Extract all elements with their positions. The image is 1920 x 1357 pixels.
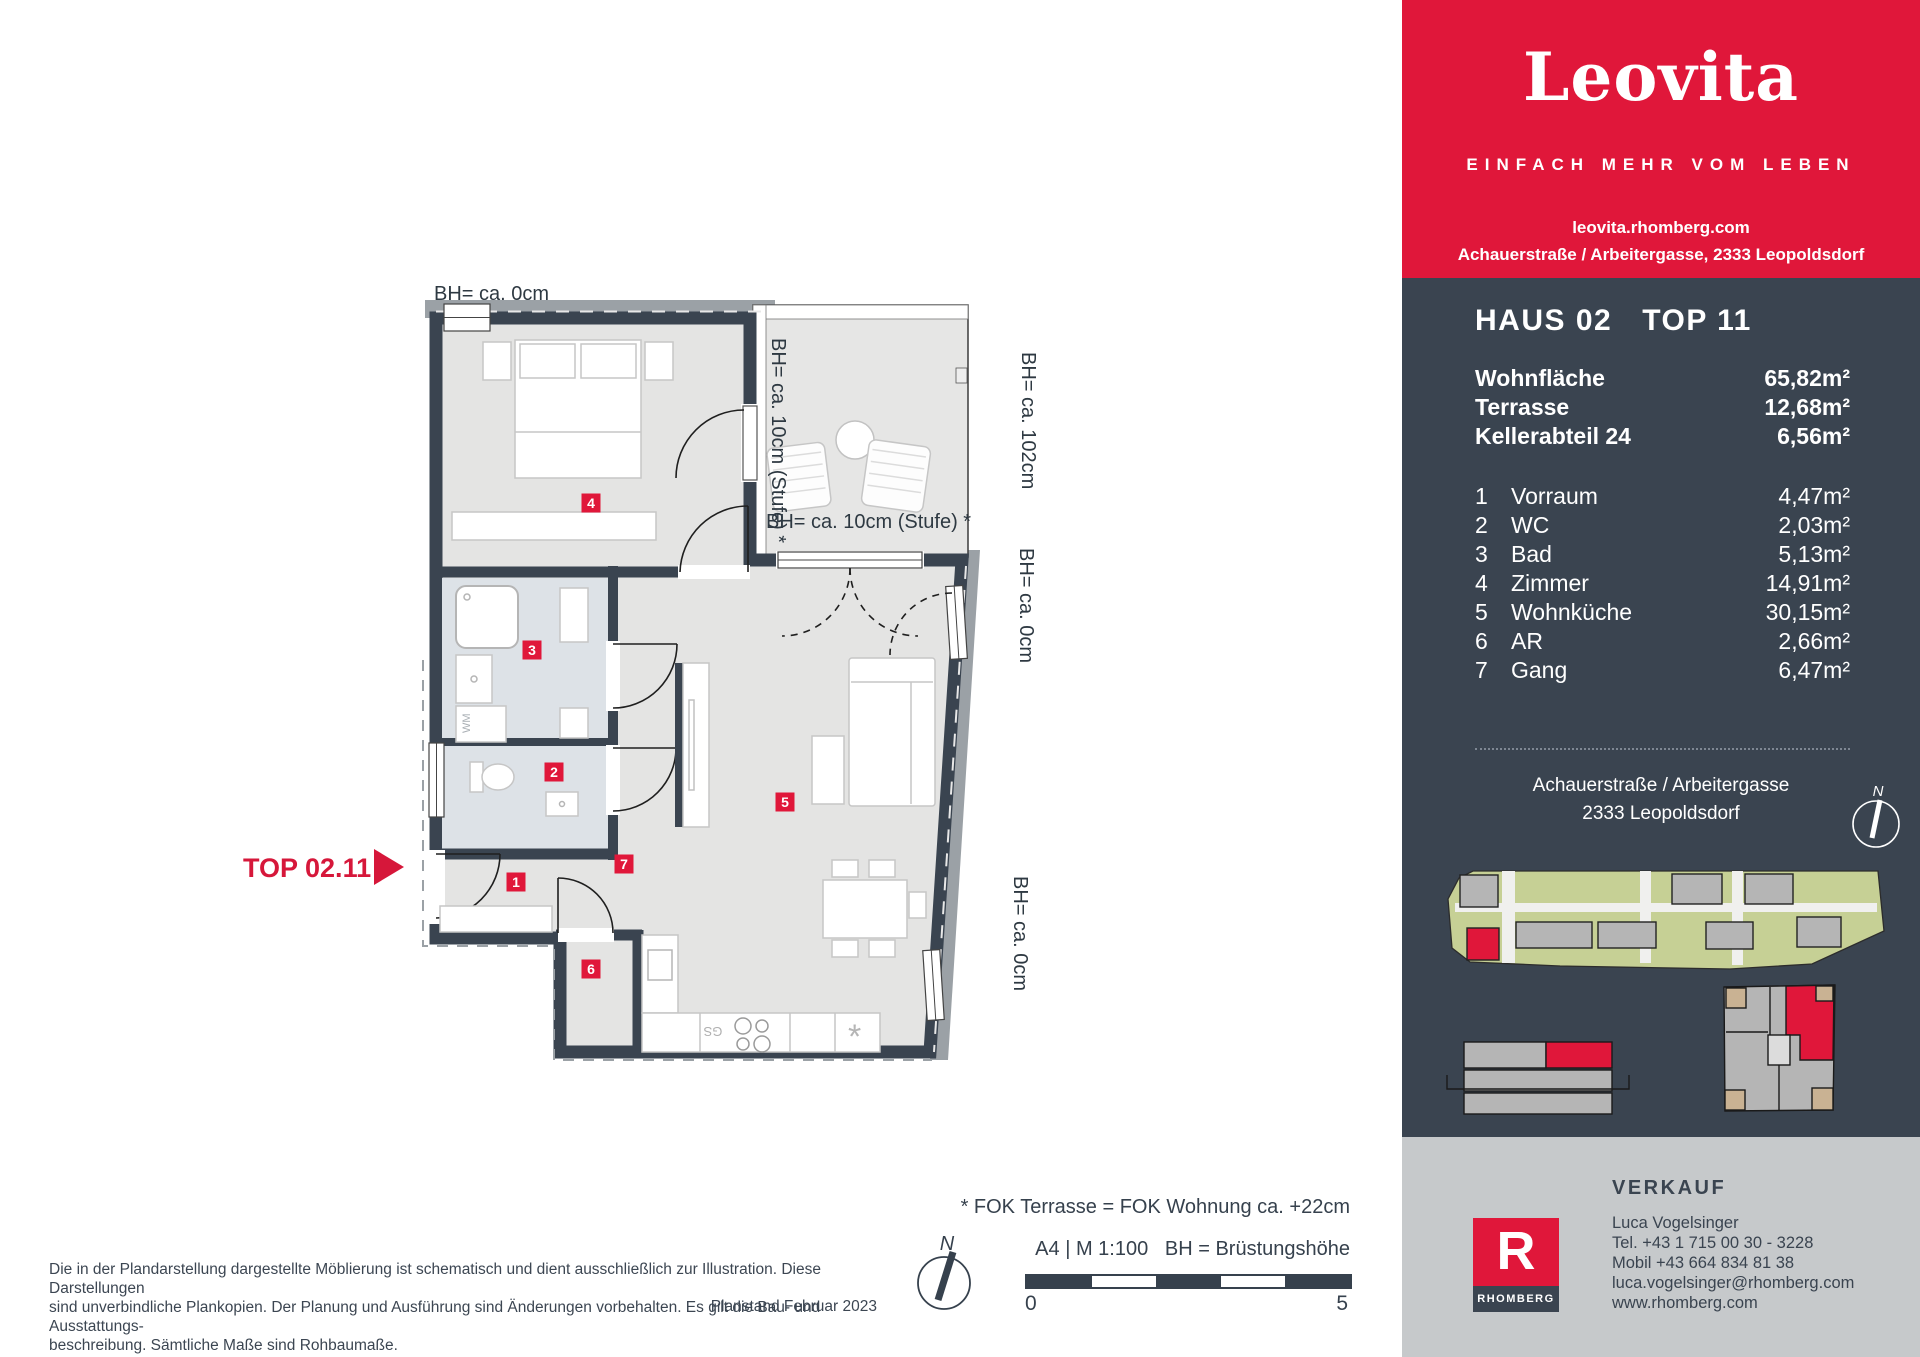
bh-label-top: BH= ca. 0cm xyxy=(434,283,549,305)
rhomberg-logo-text: RHOMBERG xyxy=(1473,1286,1559,1312)
area-row: Kellerabteil 246,56m² xyxy=(1475,422,1850,451)
bed xyxy=(515,340,641,478)
scale-seg xyxy=(1092,1276,1157,1287)
unit-pointer: TOP 02.11 xyxy=(243,849,404,885)
elevation-highlight xyxy=(1546,1042,1612,1068)
compass: N xyxy=(900,1220,990,1330)
room-list: 1Vorraum4,47m² 2WC2,03m² 3Bad5,13m² 4Zim… xyxy=(1475,482,1850,685)
room-badge: 4 xyxy=(582,494,601,513)
vorraum-wardrobe xyxy=(440,906,552,932)
divider xyxy=(1475,748,1850,750)
bath-cabinet-small xyxy=(560,708,588,738)
wc-window xyxy=(429,743,444,817)
unit-pointer-arrow-icon xyxy=(374,849,404,885)
svg-text:1: 1 xyxy=(512,874,520,890)
sidebar-compass-n: N xyxy=(1873,783,1884,800)
fok-note: * FOK Terrasse = FOK Wohnung ca. +22cm xyxy=(950,1196,1350,1219)
scale-start: 0 xyxy=(1025,1292,1037,1316)
area-row: Wohnfläche65,82m² xyxy=(1475,364,1850,393)
elevation-diagram xyxy=(1447,1042,1629,1114)
scale-seg xyxy=(1027,1276,1092,1287)
unit-house: HAUS 02 xyxy=(1475,304,1612,337)
bedroom-sideboard xyxy=(452,512,656,540)
washing-machine: WM xyxy=(456,706,506,742)
room-row: 7Gang6,47m² xyxy=(1475,656,1850,685)
contact-web-link[interactable]: www.rhomberg.com xyxy=(1612,1293,1854,1313)
room-badge: 2 xyxy=(545,763,564,782)
terrace-sliding-door xyxy=(778,552,922,568)
bath-cabinet xyxy=(560,588,588,642)
room-badge: 1 xyxy=(507,873,526,892)
bh-label-kitchen-window: BH= ca. 0cm xyxy=(1009,876,1031,991)
compass-needle-icon xyxy=(938,1252,953,1300)
svg-text:2: 2 xyxy=(550,764,558,780)
format-scale-note: A4 | M 1:100 BH = Brüstungshöhe xyxy=(950,1238,1350,1261)
scale-end: 5 xyxy=(1318,1292,1348,1316)
floorplan-document: WM xyxy=(0,0,1920,1357)
terrace-fixture xyxy=(956,368,967,383)
contact-footer: R RHOMBERG VERKAUF Luca Vogelsinger Tel.… xyxy=(1402,1137,1920,1357)
area-row: Terrasse12,68m² xyxy=(1475,393,1850,422)
sidebar-compass-needle-icon xyxy=(1872,800,1880,838)
scale-seg xyxy=(1156,1276,1221,1287)
scale-seg xyxy=(1285,1276,1350,1287)
room-badge: 6 xyxy=(582,960,601,979)
floor-schematic xyxy=(1724,985,1835,1111)
room-badge: 5 xyxy=(776,793,795,812)
side-table xyxy=(812,736,844,804)
disclaimer-line: Die in der Plandarstellung dargestellte … xyxy=(49,1260,877,1298)
room-badge: 7 xyxy=(615,855,634,874)
sofa xyxy=(849,658,935,806)
floor-plan: WM xyxy=(200,235,1060,1105)
sink-symbol: * xyxy=(848,1018,861,1056)
svg-text:4: 4 xyxy=(587,495,595,511)
room-row: 6AR2,66m² xyxy=(1475,627,1850,656)
svg-text:WM: WM xyxy=(461,713,473,733)
contact-name: Luca Vogelsinger xyxy=(1612,1213,1854,1233)
contact-email-link[interactable]: luca.vogelsinger@rhomberg.com xyxy=(1612,1273,1854,1293)
dishwasher-label: GS xyxy=(703,1024,722,1039)
contact-details: Luca Vogelsinger Tel. +43 1 715 00 30 - … xyxy=(1612,1213,1854,1313)
room-row: 5Wohnküche30,15m² xyxy=(1475,598,1850,627)
brand-address: Achauerstraße / Arbeitergasse, 2333 Leop… xyxy=(1402,245,1920,265)
unit-top: TOP 11 xyxy=(1642,304,1752,337)
svg-text:7: 7 xyxy=(620,856,628,872)
room-row: 3Bad5,13m² xyxy=(1475,540,1850,569)
contact-tel: Tel. +43 1 715 00 30 - 3228 xyxy=(1612,1233,1854,1253)
terrace-chair-right xyxy=(861,439,932,513)
brand-header: Leovita EINFACH MEHR VOM LEBEN leovita.r… xyxy=(1402,0,1920,278)
room-row: 2WC2,03m² xyxy=(1475,511,1850,540)
scale-seg xyxy=(1221,1276,1286,1287)
svg-text:3: 3 xyxy=(528,642,536,658)
brand-website-link[interactable]: leovita.rhomberg.com xyxy=(1402,218,1920,238)
bh-label-terrace-bottom: BH= ca. 10cm (Stufe) * xyxy=(766,511,971,533)
area-summary: Wohnfläche65,82m² Terrasse12,68m² Keller… xyxy=(1475,364,1850,451)
unit-pointer-label: TOP 02.11 xyxy=(243,853,371,883)
contact-mobile: Mobil +43 664 834 81 38 xyxy=(1612,1253,1854,1273)
compass-n: N xyxy=(940,1233,955,1255)
sidebar: Leovita EINFACH MEHR VOM LEBEN leovita.r… xyxy=(1402,0,1920,1357)
room-row: 1Vorraum4,47m² xyxy=(1475,482,1850,511)
unit-title: HAUS 02TOP 11 xyxy=(1475,304,1752,338)
brand-tagline: EINFACH MEHR VOM LEBEN xyxy=(1402,155,1920,175)
bh-label-living-door: BH= ca. 0cm xyxy=(1015,548,1037,663)
room-badge: 3 xyxy=(523,641,542,660)
rhomberg-logo: R RHOMBERG xyxy=(1473,1218,1559,1312)
site-highlighted-building xyxy=(1467,928,1499,960)
nightstand-right xyxy=(645,342,673,380)
bedroom-window xyxy=(444,304,490,331)
svg-text:5: 5 xyxy=(781,794,789,810)
wc-floor xyxy=(442,744,613,854)
nightstand-left xyxy=(483,342,511,380)
plan-date: Planstand Februar 2023 xyxy=(49,1298,877,1316)
toilet xyxy=(470,762,514,792)
sidebar-graphics: N xyxy=(1440,770,1900,1120)
wc-sink xyxy=(546,792,578,816)
svg-text:6: 6 xyxy=(587,961,595,977)
disclaimer-line: beschreibung. Sämtliche Maße sind Rohbau… xyxy=(49,1336,877,1355)
shower xyxy=(456,586,518,648)
sidebar-compass: N xyxy=(1853,783,1899,847)
bh-label-terrace-right: BH= ca. 102cm xyxy=(1017,352,1039,489)
bath-sink xyxy=(456,655,492,703)
site-plan xyxy=(1448,871,1884,969)
rhomberg-logo-letter: R xyxy=(1473,1218,1559,1286)
scale-bar xyxy=(1025,1274,1352,1289)
brand-logo: Leovita xyxy=(1402,38,1920,116)
hall-wardrobe xyxy=(675,663,709,827)
room-row: 4Zimmer14,91m² xyxy=(1475,569,1850,598)
verkauf-heading: VERKAUF xyxy=(1612,1177,1726,1200)
